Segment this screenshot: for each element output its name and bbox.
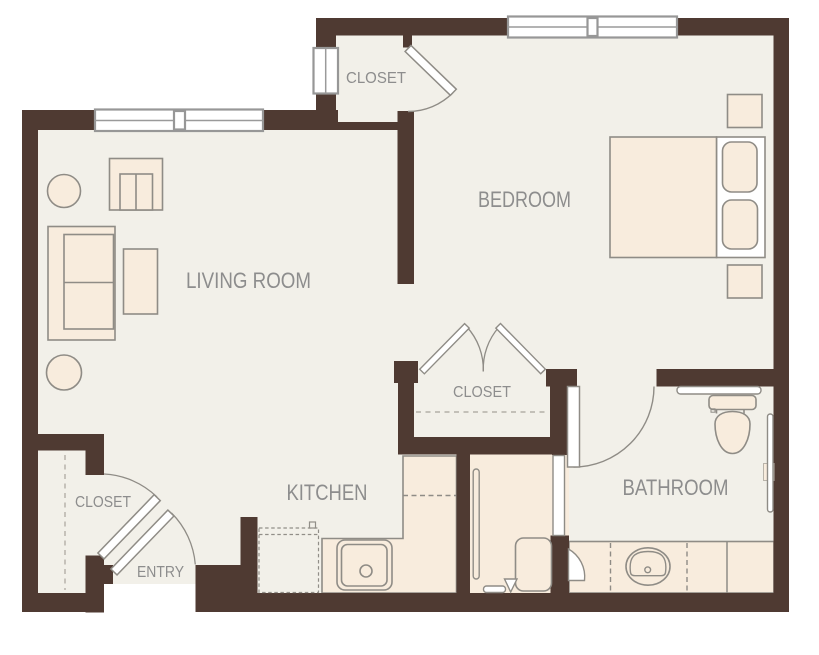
svg-text:ENTRY: ENTRY: [137, 564, 184, 581]
svg-text:CLOSET: CLOSET: [75, 494, 131, 511]
svg-text:LIVING ROOM: LIVING ROOM: [186, 268, 311, 293]
svg-text:KITCHEN: KITCHEN: [287, 480, 368, 505]
svg-text:BATHROOM: BATHROOM: [623, 475, 729, 500]
svg-text:CLOSET: CLOSET: [346, 70, 407, 87]
svg-text:CLOSET: CLOSET: [453, 384, 511, 401]
svg-text:BEDROOM: BEDROOM: [478, 187, 571, 212]
